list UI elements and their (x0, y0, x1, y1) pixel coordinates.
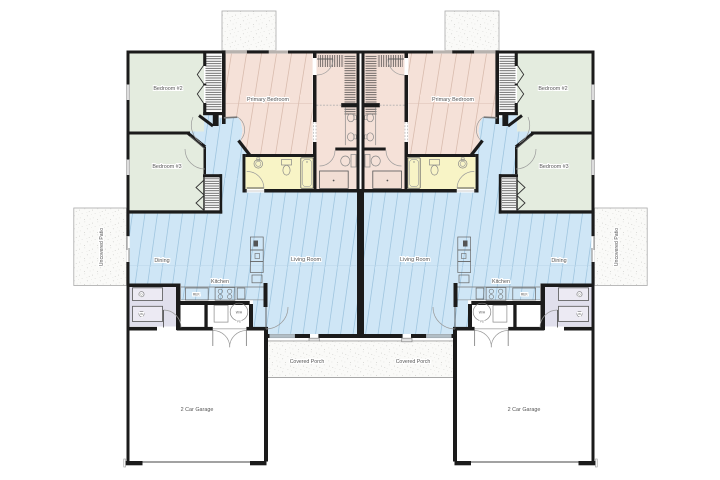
svg-text:Bedroom #2: Bedroom #2 (153, 86, 182, 92)
svg-text:Bedroom #3: Bedroom #3 (152, 164, 181, 170)
svg-text:Covered Porch: Covered Porch (290, 359, 325, 365)
svg-text:Covered Porch: Covered Porch (396, 359, 431, 365)
svg-text:REF.: REF. (521, 293, 528, 297)
svg-text:Dining: Dining (551, 258, 566, 264)
svg-text:W/H: W/H (479, 310, 486, 314)
svg-text:W: W (578, 312, 581, 316)
svg-text:2 Car Garage: 2 Car Garage (181, 407, 214, 413)
svg-text:REF.: REF. (193, 293, 200, 297)
svg-text:Bedroom #3: Bedroom #3 (539, 164, 568, 170)
svg-text:FS: FS (480, 320, 484, 324)
svg-text:Primary Bedroom: Primary Bedroom (432, 97, 474, 103)
svg-text:Kitchen: Kitchen (211, 279, 229, 285)
svg-text:2 Car Garage: 2 Car Garage (508, 407, 541, 413)
svg-text:W: W (140, 312, 143, 316)
svg-text:Primary Bedroom: Primary Bedroom (247, 97, 289, 103)
svg-text:Living Room: Living Room (291, 257, 321, 263)
svg-text:Bedroom #2: Bedroom #2 (538, 86, 567, 92)
svg-text:FS: FS (237, 320, 241, 324)
svg-text:Living Room: Living Room (400, 257, 430, 263)
svg-text:Kitchen: Kitchen (492, 279, 510, 285)
svg-text:Uncovered Patio: Uncovered Patio (99, 228, 105, 266)
svg-text:W/H: W/H (236, 310, 243, 314)
svg-text:Dining: Dining (154, 258, 169, 264)
svg-text:Uncovered Patio: Uncovered Patio (614, 228, 620, 266)
